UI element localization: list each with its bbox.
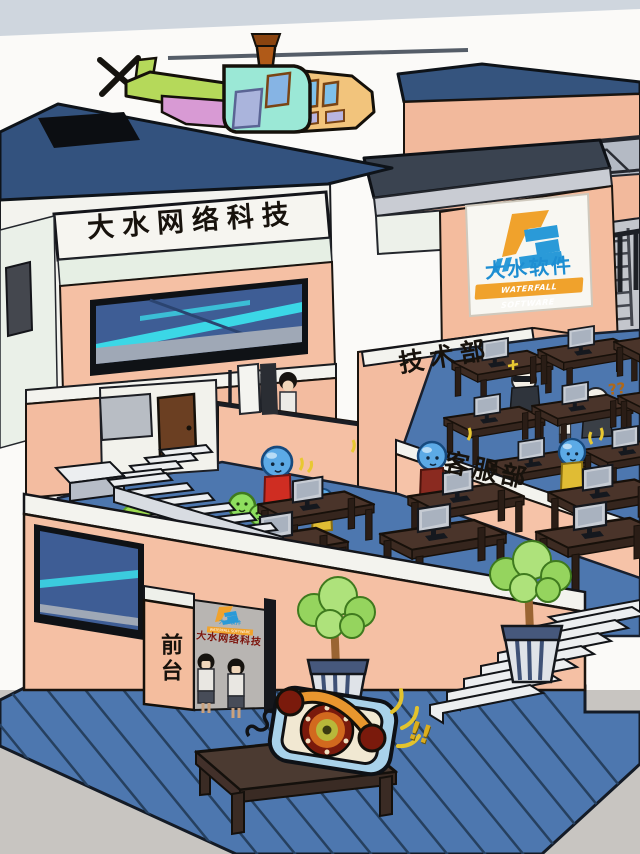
illustration-canvas: 大水网络科技 技术部 客服部 前台 大水软件 WATERFALL SOFTWAR… <box>0 0 640 854</box>
blue-character <box>559 439 585 490</box>
office-building-illustration <box>0 0 640 854</box>
windshield <box>233 89 262 128</box>
front-window <box>34 524 144 640</box>
front-desk-label: 前台 <box>155 616 185 702</box>
balcony-person <box>279 372 297 416</box>
